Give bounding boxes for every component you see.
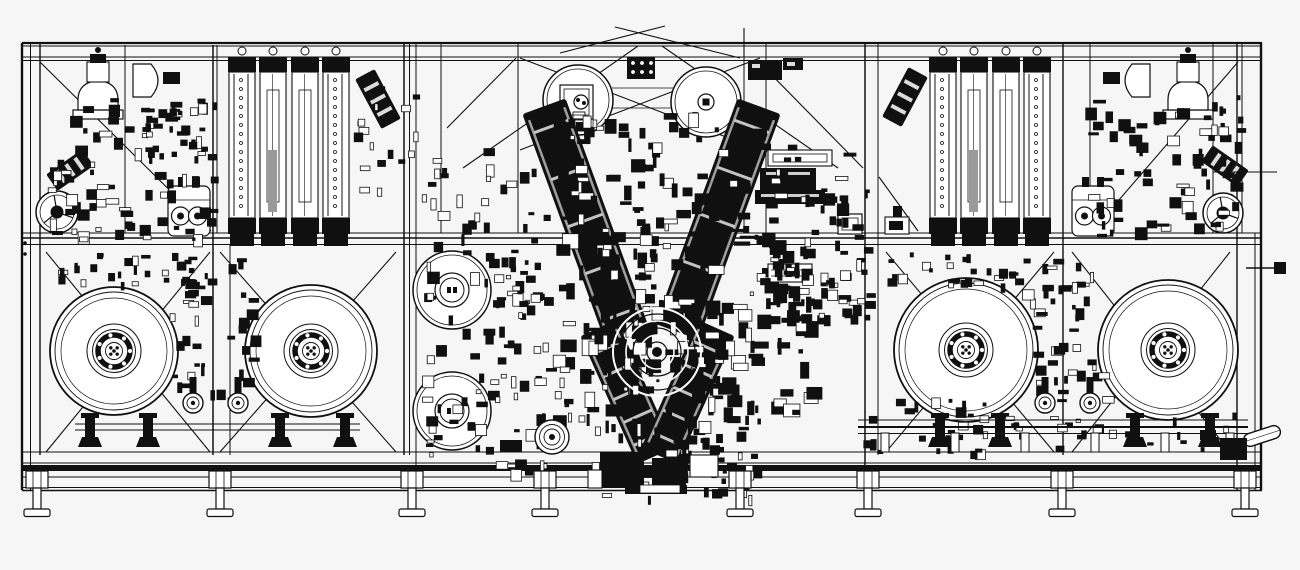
machine-assembly-drawing — [0, 0, 1300, 570]
cad-viewport — [0, 0, 1300, 570]
